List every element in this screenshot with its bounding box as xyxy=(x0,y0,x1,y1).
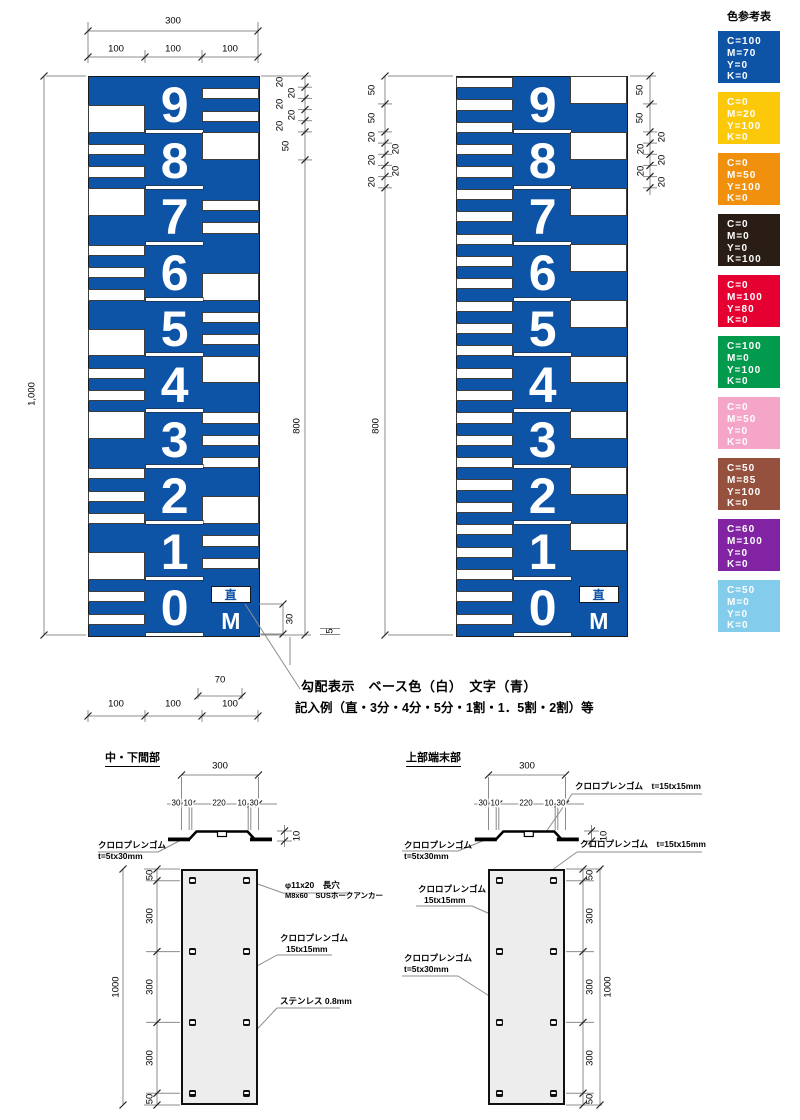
tick-stripe xyxy=(456,166,513,177)
gauge-section: 9 xyxy=(457,77,627,133)
dim-label: 20 xyxy=(391,166,402,177)
anchor-bolt-slot xyxy=(189,948,196,955)
tick-block xyxy=(88,329,145,357)
cmyk-value-line: M=0 xyxy=(727,231,780,243)
callout-rubber-left-section: クロロプレンゴム t=5tx30mm xyxy=(98,840,166,861)
cmyk-value-line: Y=100 xyxy=(727,182,780,194)
gauge-digit: 1 xyxy=(514,524,571,580)
gauge-section: 6 xyxy=(457,245,627,301)
cmyk-value-line: M=85 xyxy=(727,475,780,487)
color-swatch: C=0M=50Y=0K=0 xyxy=(718,397,780,449)
cmyk-value-line: K=100 xyxy=(727,254,780,266)
anchor-bolt-slot xyxy=(496,1090,503,1097)
cmyk-value-line: C=100 xyxy=(727,36,780,48)
cmyk-value-line: C=100 xyxy=(727,341,780,353)
gauge-digit: 1 xyxy=(146,524,203,580)
dim-label: 1,000 xyxy=(27,382,38,406)
dim-label: 20 xyxy=(287,88,298,99)
cmyk-value-line: C=0 xyxy=(727,280,780,292)
cmyk-value-line: K=0 xyxy=(727,437,780,449)
gauge-digit: 8 xyxy=(514,133,571,189)
dim-label: 220 xyxy=(518,799,533,808)
tick-block xyxy=(570,411,627,439)
cmyk-value-line: Y=0 xyxy=(727,60,780,72)
dim-label: 20 xyxy=(657,155,668,166)
tick-stripe xyxy=(456,144,513,155)
tick-block xyxy=(570,523,627,551)
dim-label: 100 xyxy=(165,699,181,710)
dim-label: 50 xyxy=(585,870,596,881)
tick-block xyxy=(570,76,627,104)
dim-label: 300 xyxy=(145,908,156,924)
gauge-section: 2 xyxy=(89,468,259,524)
cmyk-value-line: K=0 xyxy=(727,498,780,510)
section-separator-line xyxy=(146,633,203,636)
tick-stripe xyxy=(202,222,259,233)
dim-label: 300 xyxy=(145,1050,156,1066)
gauge-section: 5 xyxy=(89,301,259,357)
gauge-digit: 6 xyxy=(514,245,571,301)
cmyk-value-line: K=0 xyxy=(727,315,780,327)
anchor-bolt-slot xyxy=(496,1019,503,1026)
anchor-bolt-slot xyxy=(243,877,250,884)
cmyk-value-line: C=0 xyxy=(727,219,780,231)
cmyk-value-line: Y=0 xyxy=(727,609,780,621)
dim-label: 800 xyxy=(371,418,382,434)
color-swatch: C=100M=0Y=100K=0 xyxy=(718,336,780,388)
dim-label: 20 xyxy=(275,99,286,110)
grade-indicator-box: 直 xyxy=(211,586,251,603)
tick-stripe xyxy=(88,390,145,401)
tick-stripe xyxy=(88,468,145,479)
gauge-digit: 5 xyxy=(514,301,571,357)
cmyk-value-line: K=0 xyxy=(727,132,780,144)
tick-stripe xyxy=(456,77,513,88)
cmyk-value-line: K=0 xyxy=(727,193,780,205)
gauge-digit: 7 xyxy=(146,189,203,245)
cmyk-value-line: M=70 xyxy=(727,48,780,60)
tick-block xyxy=(88,188,145,216)
gauge-digit: 5 xyxy=(146,301,203,357)
tick-stripe xyxy=(456,99,513,110)
dim-label: 20 xyxy=(275,77,286,88)
cmyk-value-line: C=50 xyxy=(727,463,780,475)
dim-label: 20 xyxy=(636,166,647,177)
gauge-section: 0直M xyxy=(457,580,627,636)
color-swatch: C=50M=85Y=100K=0 xyxy=(718,458,780,510)
callout-line: t=5tx30mm xyxy=(404,851,472,862)
tick-stripe xyxy=(456,502,513,513)
tick-stripe xyxy=(202,435,259,446)
gauge-digit: 2 xyxy=(146,468,203,524)
color-swatch: C=0M=50Y=100K=0 xyxy=(718,153,780,205)
tick-block xyxy=(570,356,627,384)
cmyk-value-line: K=0 xyxy=(727,71,780,83)
cmyk-value-line: M=50 xyxy=(727,414,780,426)
dim-label: 30 xyxy=(556,799,567,808)
color-swatch: C=0M=0Y=0K=100 xyxy=(718,214,780,266)
dim-label: 20 xyxy=(367,132,378,143)
gauge-section: 3 xyxy=(457,412,627,468)
anchor-bolt-slot xyxy=(243,948,250,955)
dim-label: 10 xyxy=(183,799,194,808)
anchor-bolt-slot xyxy=(550,1090,557,1097)
callout-line: 15tx15mm xyxy=(280,944,348,955)
callout-line: クロロプレンゴム xyxy=(280,933,348,944)
cmyk-value-line: M=0 xyxy=(727,353,780,365)
gauge-section: 9 xyxy=(89,77,259,133)
dim-label: 20 xyxy=(275,121,286,132)
gauge-section: 6 xyxy=(89,245,259,301)
staff-gauge-left: 9876543210直M xyxy=(88,76,260,637)
anchor-bolt-slot xyxy=(550,1019,557,1026)
gauge-section: 8 xyxy=(89,133,259,189)
anchor-bolt-slot xyxy=(189,1019,196,1026)
tick-stripe xyxy=(202,111,259,122)
tick-block xyxy=(570,132,627,160)
tick-block xyxy=(202,273,259,301)
cmyk-value-line: K=0 xyxy=(727,559,780,571)
tick-block xyxy=(88,411,145,439)
tick-stripe xyxy=(88,614,145,625)
dim-label: 30 xyxy=(171,799,182,808)
grade-indicator-box: 直 xyxy=(579,586,619,603)
dim-label: 800 xyxy=(292,418,303,434)
anchor-bolt-slot xyxy=(550,948,557,955)
callout-line: ステンレス 0.8mm xyxy=(280,996,352,1007)
gauge-section: 2 xyxy=(457,468,627,524)
dim-label: 300 xyxy=(585,908,596,924)
dim-label: 1000 xyxy=(111,976,122,997)
dim-label: 70 xyxy=(215,675,226,686)
tick-stripe xyxy=(456,435,513,446)
color-swatch: C=0M=100Y=80K=0 xyxy=(718,275,780,327)
callout-line: M8x60 SUSホークアンカー xyxy=(285,891,383,902)
tick-stripe xyxy=(456,368,513,379)
cmyk-value-line: M=100 xyxy=(727,536,780,548)
tick-block xyxy=(570,188,627,216)
anchor-bolt-slot xyxy=(189,1090,196,1097)
water-level-gauge-drawing: 9876543210直M 9876543210直M 3001001001001,… xyxy=(0,0,800,1120)
color-table-title: 色参考表 xyxy=(718,8,780,24)
dim-label: 100 xyxy=(222,44,238,55)
tick-stripe xyxy=(202,312,259,323)
cmyk-value-line: Y=100 xyxy=(727,365,780,377)
gauge-digit: 4 xyxy=(514,357,571,413)
cmyk-value-line: Y=100 xyxy=(727,121,780,133)
tick-stripe xyxy=(456,457,513,468)
tick-stripe xyxy=(456,234,513,245)
callout-rubber-top-right: クロロプレンゴム t=15tx15mm xyxy=(575,781,701,792)
cmyk-value-line: M=0 xyxy=(727,597,780,609)
tick-stripe xyxy=(456,547,513,558)
callout-rubber-center-right: クロロプレンゴム 15tx15mm xyxy=(418,884,486,905)
tick-block xyxy=(202,496,259,524)
cmyk-value-line: Y=0 xyxy=(727,548,780,560)
dim-label: 30 xyxy=(285,614,296,625)
dim-label: 20 xyxy=(287,110,298,121)
dim-label: 50 xyxy=(145,870,156,881)
dim-label: 50 xyxy=(635,113,646,124)
tick-stripe xyxy=(456,256,513,267)
dim-label: 50 xyxy=(585,1094,596,1105)
front-view-panel-right xyxy=(488,869,565,1105)
staff-gauge-right: 9876543210直M xyxy=(456,76,628,637)
tick-stripe xyxy=(202,412,259,423)
gauge-section: 7 xyxy=(457,189,627,245)
callout-line: クロロプレンゴム xyxy=(418,884,486,895)
dim-label: 50 xyxy=(635,85,646,96)
dim-label: 20 xyxy=(367,177,378,188)
dim-label: 100 xyxy=(222,699,238,710)
meter-unit-label: M xyxy=(570,609,627,633)
callout-rubber-left-section2: クロロプレンゴム t=5tx30mm xyxy=(404,840,472,861)
tick-stripe xyxy=(456,122,513,133)
gauge-digit: 0 xyxy=(514,580,571,636)
tick-block xyxy=(202,356,259,384)
tick-stripe xyxy=(202,457,259,468)
callout-line: t=5tx30mm xyxy=(98,851,166,862)
gauge-section: 0直M xyxy=(89,580,259,636)
tick-stripe xyxy=(456,524,513,535)
section-separator-line xyxy=(514,633,571,636)
tick-stripe xyxy=(88,144,145,155)
tick-stripe xyxy=(88,289,145,300)
tick-block xyxy=(202,132,259,160)
gauge-digit: 9 xyxy=(146,77,203,133)
callout-line: クロロプレンゴム t=15tx15mm xyxy=(580,839,706,850)
cmyk-value-line: Y=0 xyxy=(727,243,780,255)
gauge-digit: 0 xyxy=(146,580,203,636)
note-grade-display: 勾配表示 ベース色（白） 文字（青） xyxy=(301,676,537,695)
callout-line: クロロプレンゴム xyxy=(404,953,472,964)
tick-stripe xyxy=(88,166,145,177)
tick-block xyxy=(88,552,145,580)
drawing-right-title: 上部端末部 xyxy=(406,749,461,767)
tick-stripe xyxy=(456,211,513,222)
dim-label: 10 xyxy=(544,799,555,808)
dim-label: 20 xyxy=(636,144,647,155)
gauge-digit: 8 xyxy=(146,133,203,189)
gauge-section: 1 xyxy=(457,524,627,580)
cmyk-value-line: Y=100 xyxy=(727,487,780,499)
anchor-bolt-slot xyxy=(243,1019,250,1026)
tick-stripe xyxy=(202,334,259,345)
cmyk-value-line: M=20 xyxy=(727,109,780,121)
cmyk-value-line: Y=0 xyxy=(727,426,780,438)
dim-label: 1000 xyxy=(603,976,614,997)
tick-block xyxy=(570,300,627,328)
anchor-bolt-slot xyxy=(550,877,557,884)
dim-label: 50 xyxy=(145,1094,156,1105)
dim-label: 300 xyxy=(585,1050,596,1066)
tick-stripe xyxy=(88,591,145,602)
callout-line: クロロプレンゴム xyxy=(98,840,166,851)
gauge-section: 8 xyxy=(457,133,627,189)
callout-anchor: φ11x20 長穴 M8x60 SUSホークアンカー xyxy=(285,880,383,901)
tick-stripe xyxy=(456,323,513,334)
dim-label: 30 xyxy=(249,799,260,808)
dim-label: 10 xyxy=(292,831,303,842)
cmyk-value-line: C=0 xyxy=(727,97,780,109)
dim-label: 30 xyxy=(478,799,489,808)
color-swatch: C=0M=20Y=100K=0 xyxy=(718,92,780,144)
tick-stripe xyxy=(456,479,513,490)
cmyk-value-line: Y=80 xyxy=(727,304,780,316)
tick-stripe xyxy=(88,267,145,278)
gauge-digit: 6 xyxy=(146,245,203,301)
callout-rubber-edge-right: クロロプレンゴム t=5tx30mm xyxy=(404,953,472,974)
gauge-section: 3 xyxy=(89,412,259,468)
tick-stripe xyxy=(202,558,259,569)
dim-label: 300 xyxy=(585,979,596,995)
dim-label: 20 xyxy=(657,177,668,188)
tick-stripe xyxy=(456,390,513,401)
note-entry-examples: 記入例（直・3分・4分・5分・1割・1．5割・2割）等 xyxy=(295,697,594,716)
gauge-digit: 4 xyxy=(146,357,203,413)
gauge-section: 1 xyxy=(89,524,259,580)
dim-label: 10 xyxy=(237,799,248,808)
tick-block xyxy=(570,244,627,272)
cmyk-value-line: M=50 xyxy=(727,170,780,182)
dim-label: 100 xyxy=(108,44,124,55)
tick-stripe xyxy=(456,301,513,312)
tick-stripe xyxy=(88,368,145,379)
callout-line: クロロプレンゴム xyxy=(404,840,472,851)
dim-label: 220 xyxy=(211,799,226,808)
tick-stripe xyxy=(456,614,513,625)
tick-stripe xyxy=(88,245,145,256)
callout-rubber-mid-right: クロロプレンゴム t=15tx15mm xyxy=(580,839,706,850)
dim-label: 100 xyxy=(108,699,124,710)
tick-stripe xyxy=(456,569,513,580)
callout-line: 15tx15mm xyxy=(418,895,486,906)
cmyk-value-line: C=0 xyxy=(727,158,780,170)
tick-stripe xyxy=(202,200,259,211)
tick-stripe xyxy=(456,412,513,423)
tick-block xyxy=(88,105,145,133)
tick-stripe xyxy=(456,591,513,602)
dim-label: 300 xyxy=(212,761,228,772)
dim-label: 100 xyxy=(165,44,181,55)
dim-label: 20 xyxy=(391,144,402,155)
meter-unit-label: M xyxy=(202,609,259,633)
dim-label: 5 xyxy=(325,628,336,633)
dim-label: 300 xyxy=(519,761,535,772)
cmyk-value-line: K=0 xyxy=(727,620,780,632)
tick-stripe xyxy=(88,513,145,524)
gauge-digit: 2 xyxy=(514,468,571,524)
anchor-bolt-slot xyxy=(189,877,196,884)
gauge-digit: 3 xyxy=(514,412,571,468)
color-swatch: C=60M=100Y=0K=0 xyxy=(718,519,780,571)
tick-stripe xyxy=(456,189,513,200)
gauge-digit: 7 xyxy=(514,189,571,245)
gauge-digit: 3 xyxy=(146,412,203,468)
cmyk-value-line: C=50 xyxy=(727,585,780,597)
cmyk-value-line: C=60 xyxy=(727,524,780,536)
dim-label: 50 xyxy=(367,85,378,96)
callout-line: φ11x20 長穴 xyxy=(285,880,383,891)
callout-rubber-center-left: クロロプレンゴム 15tx15mm xyxy=(280,933,348,954)
callout-stainless: ステンレス 0.8mm xyxy=(280,996,352,1007)
dim-label: 300 xyxy=(145,979,156,995)
anchor-bolt-slot xyxy=(496,877,503,884)
dim-label: 10 xyxy=(490,799,501,808)
front-view-panel-left xyxy=(181,869,258,1105)
gauge-section: 7 xyxy=(89,189,259,245)
gauge-section: 5 xyxy=(457,301,627,357)
tick-stripe xyxy=(88,491,145,502)
cmyk-value-line: C=0 xyxy=(727,402,780,414)
gauge-section: 4 xyxy=(457,357,627,413)
callout-line: t=5tx30mm xyxy=(404,964,472,975)
dim-label: 300 xyxy=(165,16,181,27)
dim-label: 50 xyxy=(281,141,292,152)
tick-stripe xyxy=(202,535,259,546)
tick-stripe xyxy=(456,278,513,289)
dim-label: 20 xyxy=(657,132,668,143)
cmyk-value-line: M=100 xyxy=(727,292,780,304)
drawing-left-title: 中・下間部 xyxy=(105,749,160,767)
gauge-digit: 9 xyxy=(514,77,571,133)
callout-line: クロロプレンゴム t=15tx15mm xyxy=(575,781,701,792)
tick-block xyxy=(570,467,627,495)
tick-stripe xyxy=(202,88,259,99)
anchor-bolt-slot xyxy=(496,948,503,955)
tick-stripe xyxy=(456,345,513,356)
dim-label: 20 xyxy=(367,155,378,166)
color-swatch: C=100M=70Y=0K=0 xyxy=(718,31,780,83)
cmyk-value-line: K=0 xyxy=(727,376,780,388)
anchor-bolt-slot xyxy=(243,1090,250,1097)
color-swatch: C=50M=0Y=0K=0 xyxy=(718,580,780,632)
dim-label: 50 xyxy=(367,113,378,124)
gauge-section: 4 xyxy=(89,357,259,413)
